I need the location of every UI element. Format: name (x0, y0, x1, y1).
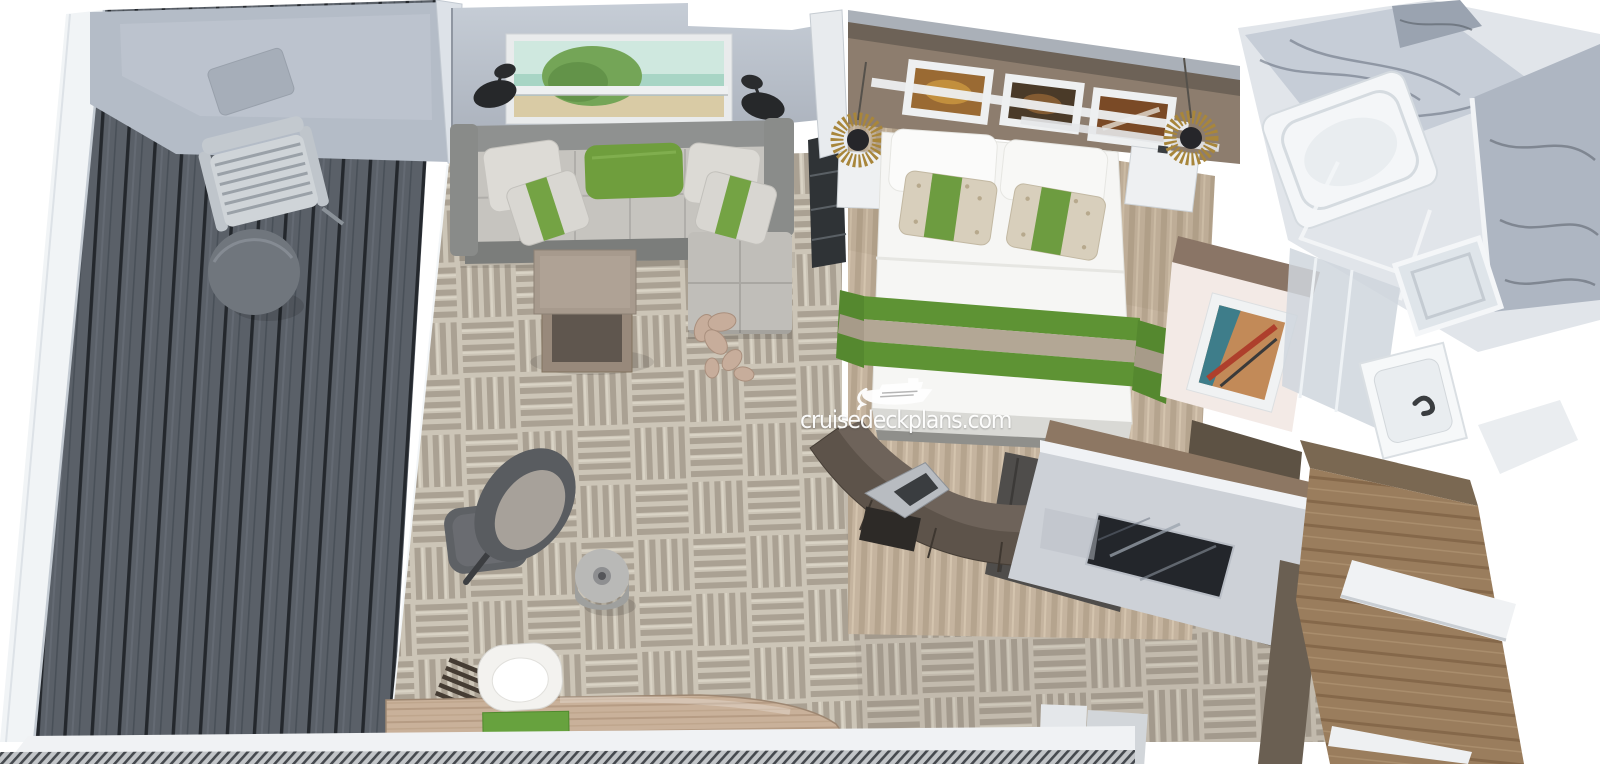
sofa-pillow-green-center (584, 142, 684, 199)
floorplan-render: cruisedeckplans.com (0, 0, 1600, 764)
wall-notch (688, 0, 792, 28)
living-wall-art (506, 34, 732, 124)
bottom-wall-hatch (0, 750, 1135, 764)
coffee-table (530, 250, 654, 375)
floorplan-canvas (0, 0, 1600, 764)
sofa-arm-left (450, 124, 478, 256)
desk-chair (476, 641, 564, 713)
bed-accent-pillow-left (898, 170, 998, 246)
balcony (0, 0, 462, 742)
